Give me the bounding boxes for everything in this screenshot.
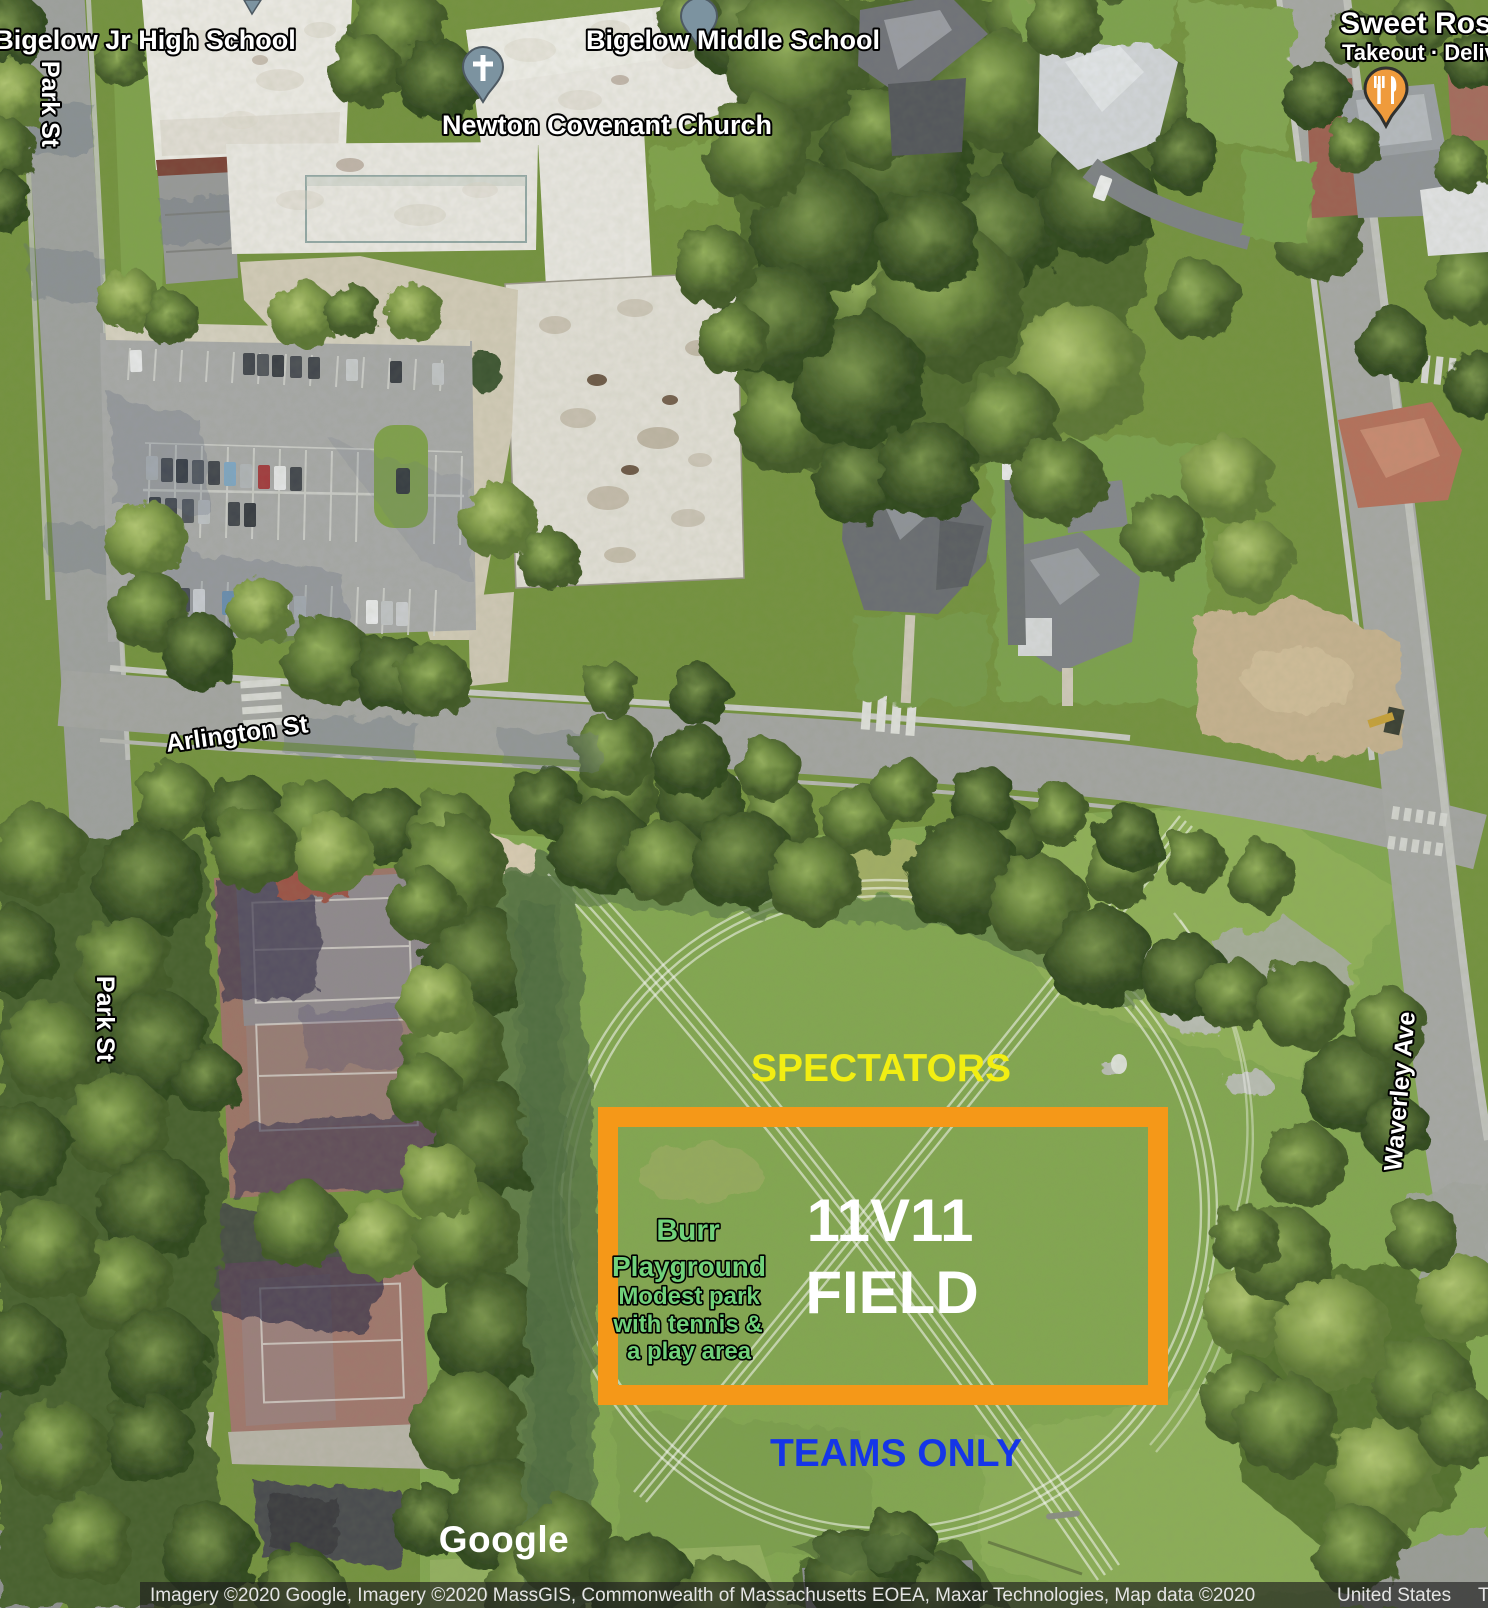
svg-text:with tennis &: with tennis & <box>612 1311 762 1338</box>
svg-text:SPECTATORS: SPECTATORS <box>751 1047 1011 1090</box>
svg-text:Bigelow Middle School: Bigelow Middle School <box>586 25 880 55</box>
svg-text:Playground: Playground <box>612 1251 766 1282</box>
svg-text:Park St: Park St <box>36 61 64 148</box>
svg-text:Park St: Park St <box>91 976 119 1063</box>
svg-text:Terms: Terms <box>1478 1585 1488 1606</box>
svg-text:Imagery ©2020 Google, Imagery: Imagery ©2020 Google, Imagery ©2020 Mass… <box>150 1585 1255 1606</box>
svg-text:Burr: Burr <box>656 1214 720 1247</box>
svg-text:FIELD: FIELD <box>805 1259 978 1326</box>
svg-text:Bigelow Jr High School: Bigelow Jr High School <box>0 25 296 55</box>
svg-text:Google: Google <box>439 1519 569 1560</box>
svg-text:United States: United States <box>1337 1585 1451 1606</box>
svg-text:11V11: 11V11 <box>807 1187 974 1254</box>
svg-text:Sweet Rossi: Sweet Rossi <box>1340 7 1488 40</box>
svg-text:Takeout · Delive: Takeout · Delive <box>1342 40 1488 65</box>
svg-text:Modest park: Modest park <box>618 1283 760 1310</box>
svg-text:a play area: a play area <box>627 1338 752 1365</box>
svg-text:Newton Covenant Church: Newton Covenant Church <box>442 110 772 140</box>
svg-text:TEAMS ONLY: TEAMS ONLY <box>770 1432 1022 1475</box>
